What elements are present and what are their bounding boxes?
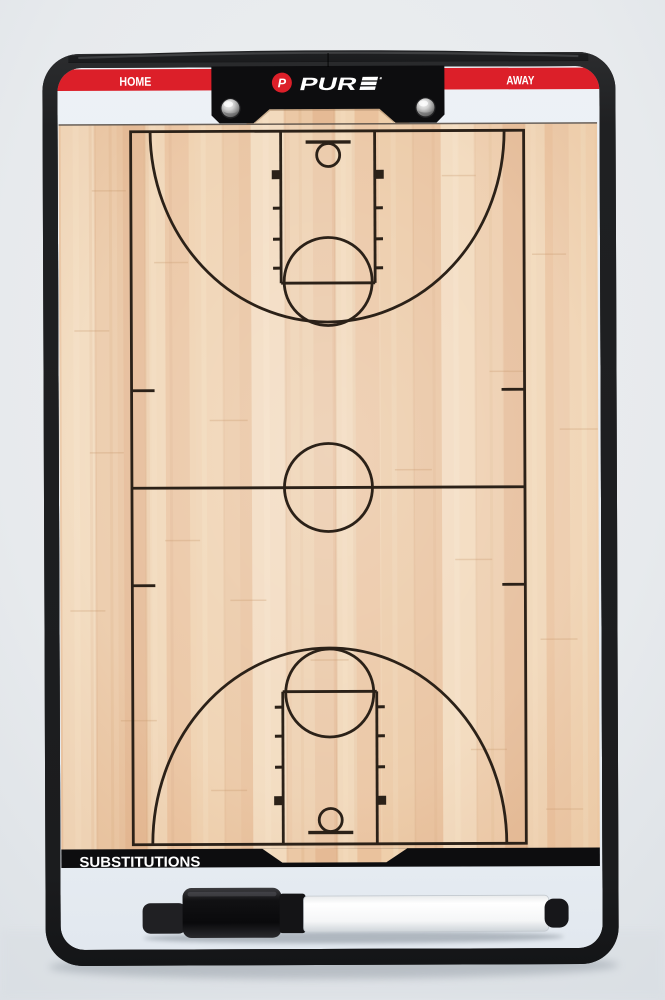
- svg-text:AWAY: AWAY: [506, 73, 534, 87]
- svg-text:HOME: HOME: [119, 75, 151, 89]
- svg-text:P: P: [278, 76, 287, 90]
- svg-text:PUR: PUR: [297, 73, 359, 94]
- svg-text:SUBSTITUTIONS: SUBSTITUTIONS: [79, 854, 200, 870]
